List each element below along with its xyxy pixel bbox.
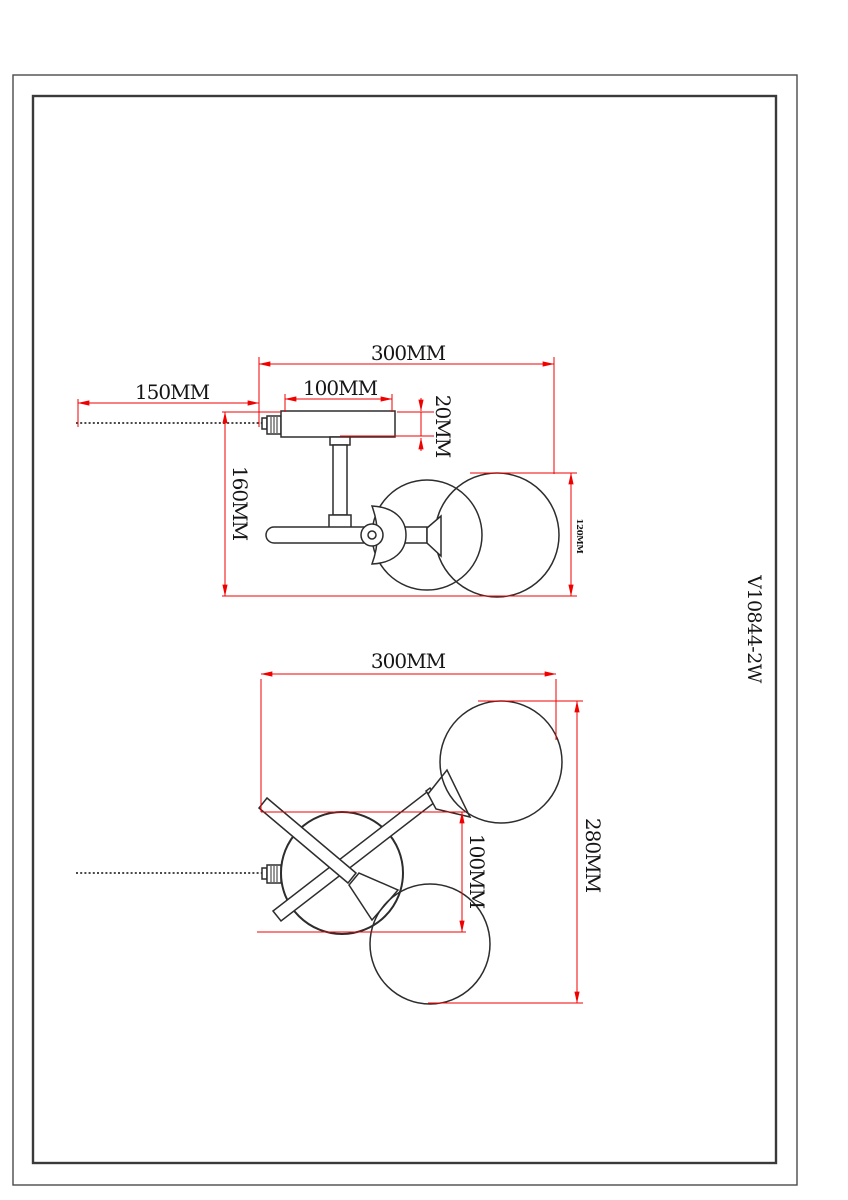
side-view-dimensions: 300MM 150MM 100MM 20MM 160MM 120MM	[78, 341, 584, 596]
socket-cone-lower	[349, 873, 398, 920]
chain-connector	[267, 416, 281, 434]
dim-label-canopy-diameter: 100MM	[465, 834, 489, 909]
outer-border	[13, 75, 797, 1185]
chain-connector-bottom	[267, 865, 281, 883]
inner-border	[33, 96, 776, 1163]
globe-front	[435, 473, 559, 597]
stem-collar	[329, 515, 351, 528]
dim-label-overall-height: 160MM	[228, 466, 252, 541]
dim-label-canopy-thickness: 20MM	[431, 395, 455, 458]
dim-label-overall-depth: 280MM	[581, 818, 605, 893]
stem-cap	[330, 437, 350, 445]
bottom-view: 300MM 100MM 280MM	[76, 649, 605, 1004]
dim-label-overall-width: 300MM	[371, 341, 446, 365]
stem	[333, 445, 347, 515]
canopy-side	[281, 411, 395, 437]
sheet-borders	[13, 75, 797, 1185]
arm-bar-upper	[273, 792, 435, 921]
dim-label-chain-length: 150MM	[135, 380, 210, 404]
socket-cone	[427, 516, 441, 556]
dim-label-canopy-width: 100MM	[303, 376, 378, 400]
dim-label-overall-width-bottom: 300MM	[371, 649, 446, 673]
dim-label-shade-diameter: 120MM	[574, 518, 584, 554]
product-code: V10844-2W	[743, 574, 765, 684]
globe-upper	[440, 701, 562, 823]
side-view: 300MM 150MM 100MM 20MM 160MM 120MM	[76, 341, 584, 597]
drawing-sheet: 300MM 150MM 100MM 20MM 160MM 120MM	[0, 0, 848, 1200]
swivel-knuckle	[361, 524, 383, 546]
bottom-view-dimensions: 300MM 100MM 280MM	[257, 649, 605, 1003]
technical-drawing: 300MM 150MM 100MM 20MM 160MM 120MM	[0, 0, 848, 1200]
